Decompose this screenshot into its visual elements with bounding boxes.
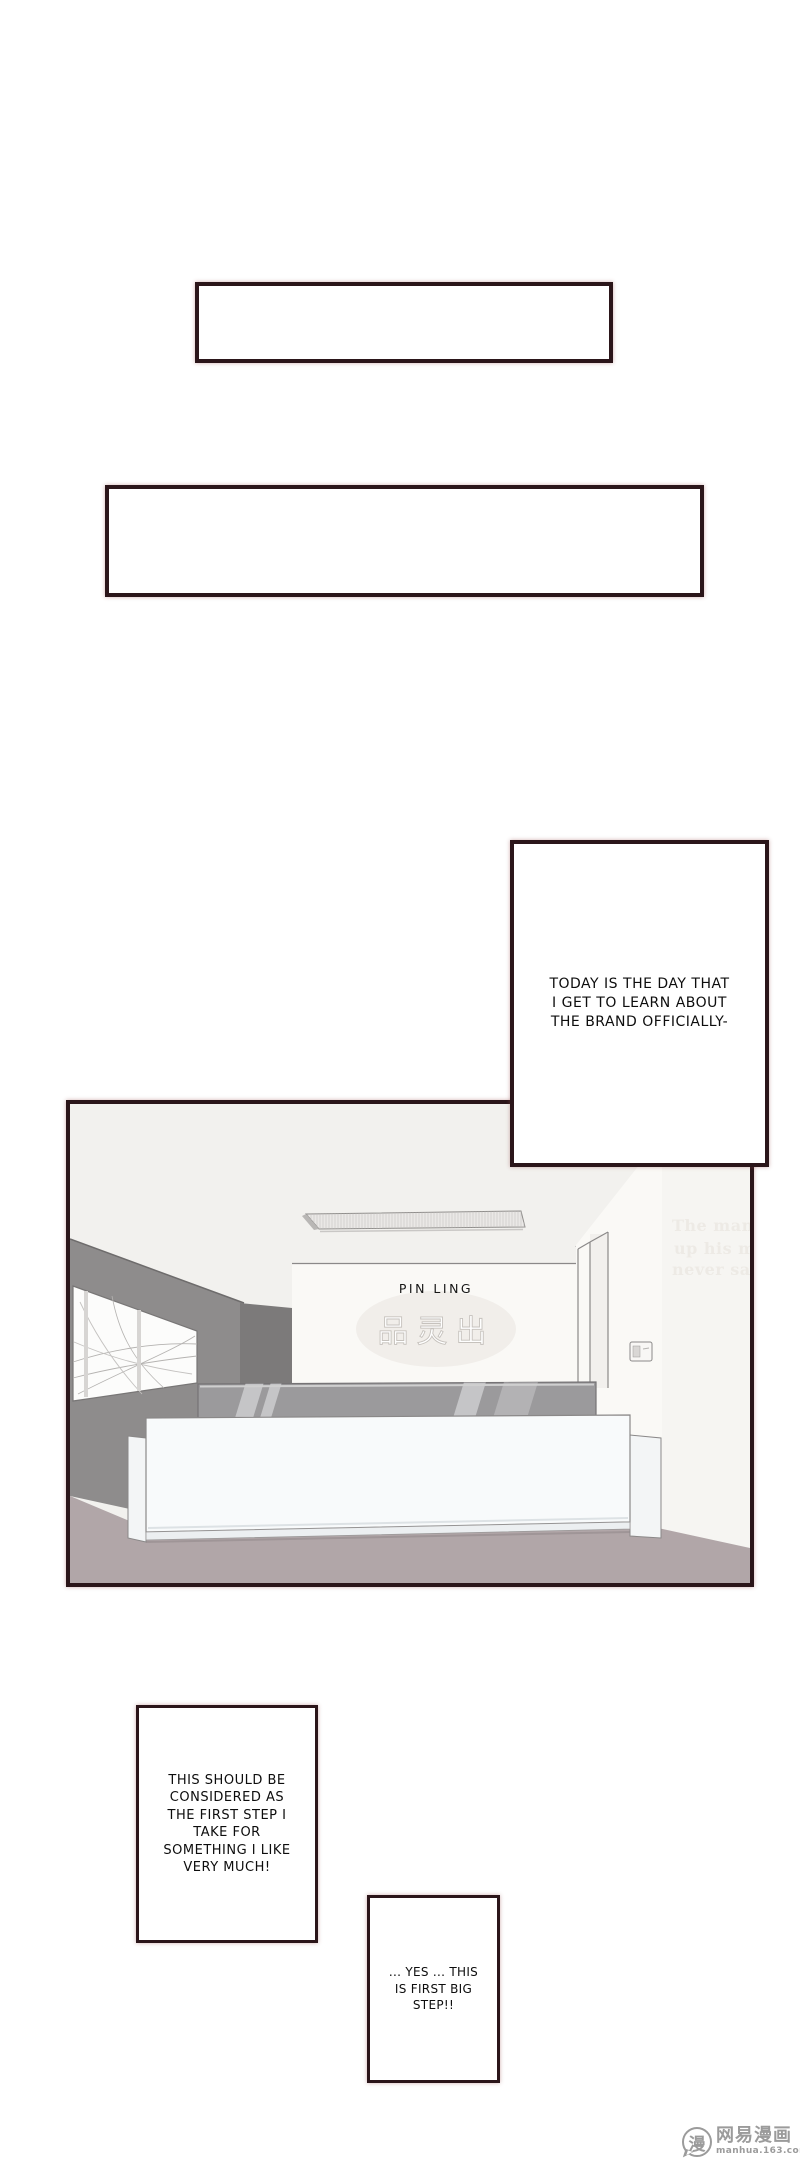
empty-caption-box-2 [105,485,704,597]
publisher-watermark: 漫 网易漫画 manhua.163.com [682,2127,800,2157]
speech-text-today: TODAY IS THE DAY THAT I GET TO LEARN ABO… [549,975,729,1032]
publisher-name: 网易漫画 [716,2127,800,2145]
reception-desk [128,1382,661,1542]
speech-box-big-step: ... YES ... THIS IS FIRST BIG STEP!! [367,1895,500,2083]
wall-watermark: The man up his mi never sa [672,1216,750,1279]
desk-front [146,1415,630,1532]
desk-left-step [128,1436,146,1542]
comic-page: 品灵出 PIN LING [0,0,800,2168]
comic-panel: 品灵出 PIN LING [66,1100,754,1587]
light-switch [630,1342,652,1361]
speech-box-today: TODAY IS THE DAY THAT I GET TO LEARN ABO… [510,840,769,1167]
speech-text-big-step: ... YES ... THIS IS FIRST BIG STEP!! [389,1964,478,2014]
reception-scene: 品灵出 PIN LING [70,1104,750,1583]
publisher-logo-icon: 漫 [682,2127,712,2157]
speech-text-first-step: THIS SHOULD BE CONSIDERED AS THE FIRST S… [163,1772,290,1877]
empty-caption-box-1 [195,282,613,363]
sign-brand-name: PIN LING [399,1281,473,1296]
desk-right-step [630,1435,661,1538]
right-wall [658,1134,750,1583]
pillar [240,1303,292,1391]
svg-text:never sa: never sa [672,1260,750,1279]
speech-box-first-step: THIS SHOULD BE CONSIDERED AS THE FIRST S… [136,1705,318,1943]
publisher-url: manhua.163.com [716,2147,800,2156]
svg-text:The man: The man [672,1216,750,1235]
sign-chinese-characters: 品灵出 [378,1314,495,1350]
svg-text:up his mi: up his mi [674,1239,750,1258]
